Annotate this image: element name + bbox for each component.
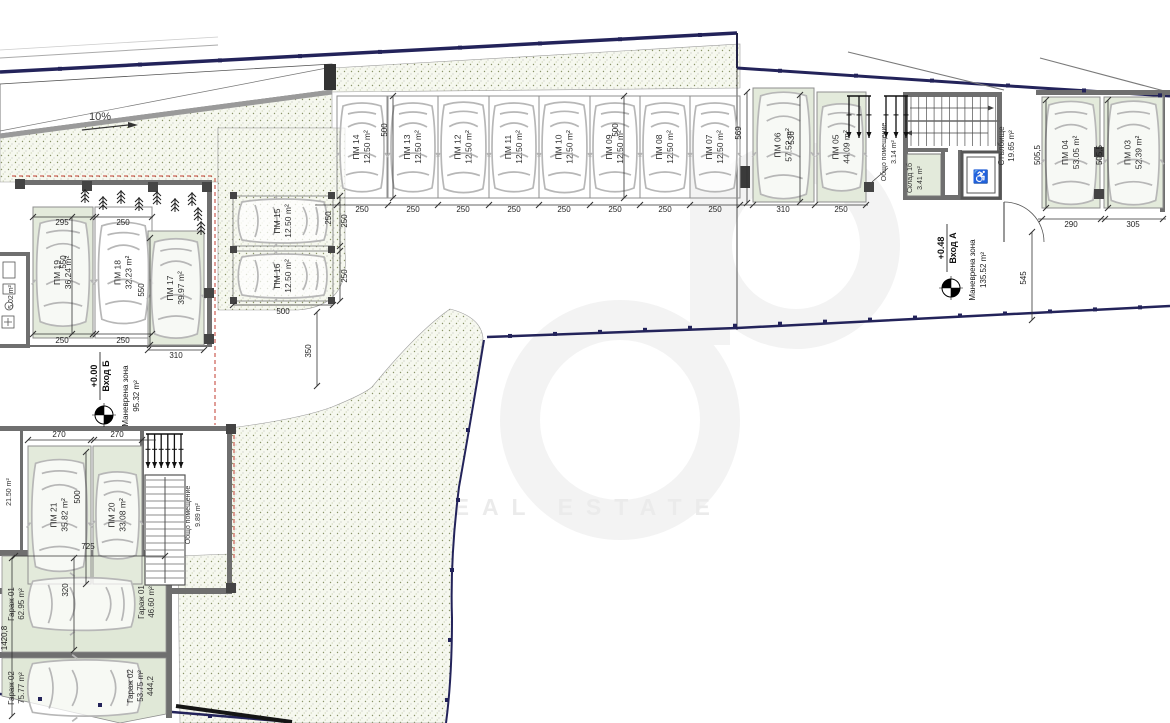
stall-label: ПМ 1739.97 m²: [165, 271, 186, 305]
fence-post: [913, 316, 917, 320]
room-label-line: 9.89 m²: [195, 502, 202, 526]
wall: [207, 180, 212, 346]
stall-label: ПМ 2135.82 m²: [49, 498, 70, 532]
fence-post: [298, 54, 302, 58]
dimension-label: 500: [276, 307, 290, 316]
room-label-line: 46.60 m²: [147, 586, 156, 618]
pillar: [328, 297, 335, 304]
dimension-label: 250: [658, 205, 672, 214]
dimension-label: 250: [340, 214, 349, 228]
stall-label: ПМ 1012.50 m²: [554, 130, 575, 164]
stall-area-value: 57.52 m²: [784, 128, 794, 162]
wall: [941, 150, 945, 200]
stall-area-value: 12.50 m²: [464, 130, 474, 164]
stall-area-value: 12.50 m²: [565, 130, 575, 164]
car-outline: [28, 578, 135, 631]
room-label-line: 53.75 m²: [136, 670, 145, 702]
room-label-line: Общо помещение: [880, 123, 888, 182]
stall-id: ПМ 08: [654, 134, 664, 159]
dimension-label: 310: [169, 351, 183, 360]
room-label-line: 3.14 m²: [891, 139, 898, 163]
wall: [0, 344, 30, 348]
fence-post: [778, 69, 782, 73]
stall-area-value: 12.50 m²: [615, 130, 625, 164]
fence-post: [688, 326, 692, 330]
dimension-label: 310: [776, 205, 790, 214]
dimension-label: 270: [110, 430, 124, 439]
entrance-b-level: +0.00: [89, 365, 99, 388]
fence-post: [643, 328, 647, 332]
dimension-label: 500: [73, 490, 82, 504]
stall-label: ПМ 1936.24 m²: [52, 256, 73, 290]
entrance-a-name: Вход А: [948, 232, 958, 264]
fence-post: [733, 324, 737, 328]
stall-label: ПМ 0544.09 m²: [831, 130, 852, 164]
fence-post: [958, 314, 962, 318]
dimension-label: 250: [834, 205, 848, 214]
stall-area-value: 12.50 m²: [715, 130, 725, 164]
room-label-line: 444,2: [146, 675, 155, 696]
dimension-label: 250: [557, 205, 571, 214]
fence-post: [466, 428, 470, 432]
room-label-line: 3.41 m²: [917, 165, 924, 189]
dimension-label: 250: [608, 205, 622, 214]
fixture: [3, 262, 15, 278]
wall: [227, 426, 232, 593]
pillar: [226, 583, 236, 593]
stall-label: ПМ 1112.50 m²: [503, 130, 524, 164]
stall-id: ПМ 15: [272, 208, 282, 233]
fence-post: [1006, 84, 1010, 88]
wall: [0, 252, 30, 256]
stall-id: ПМ 06: [773, 132, 783, 157]
fence-post: [508, 334, 512, 338]
stall-label: ПМ 0352.39 m²: [1123, 136, 1144, 170]
stall-area-value: 35.82 m²: [60, 498, 70, 532]
fence-post: [1093, 307, 1097, 311]
fence-post: [1003, 311, 1007, 315]
fence-post: [538, 41, 542, 45]
stall-area-value: 12.50 m²: [362, 130, 372, 164]
stall-id: ПМ 19: [52, 260, 62, 285]
room-label: Гараж 0275.77 m²: [7, 671, 26, 705]
stall-label: ПМ 0657.52 m²: [773, 128, 794, 162]
dimension-label: 250: [116, 218, 130, 227]
room-label: Гараж 0146.60 m²: [137, 585, 156, 619]
pillar: [148, 182, 158, 192]
stall-id: ПМ 13: [402, 134, 412, 159]
dimension-label: 250: [708, 205, 722, 214]
dimension-label: 250: [406, 205, 420, 214]
stall-area-value: 32.23 m²: [124, 256, 134, 290]
floor-plan: REAL ESTATE 10%: [0, 0, 1170, 723]
stall-id: ПМ 17: [165, 275, 175, 300]
wall: [1036, 90, 1170, 95]
dimension-label: 250: [116, 336, 130, 345]
fence-post: [378, 50, 382, 54]
fence-post: [138, 63, 142, 67]
room-label-line: 75.77 m²: [17, 672, 26, 704]
pillar: [204, 288, 214, 298]
dimension-label: 305: [1126, 220, 1140, 229]
fence-post: [778, 322, 782, 326]
room-label-line: Общо помещение: [184, 486, 192, 545]
fence-post: [1082, 88, 1086, 92]
fence-post: [1158, 93, 1162, 97]
room-label-line: 19.65 m²: [1007, 130, 1016, 162]
room-label-line: Гараж 02: [7, 671, 16, 705]
stall-label: ПМ 1512.50 m²: [272, 204, 293, 238]
pillar: [202, 182, 212, 192]
stall-area-value: 12.50 m²: [665, 130, 675, 164]
room-label-line: Гараж 01: [137, 585, 146, 619]
dimension-label: 350: [304, 344, 313, 358]
pillar: [230, 192, 237, 199]
watermark-text: REAL ESTATE: [424, 494, 723, 520]
room-label-line: Склад 1б: [906, 163, 914, 193]
fence-post: [553, 332, 557, 336]
dimension-label: 569: [734, 126, 743, 140]
pillar: [204, 334, 214, 344]
stall-id: ПМ 16: [272, 263, 282, 288]
entrance-b-name: Вход Б: [101, 360, 111, 392]
fence-post: [218, 58, 222, 62]
stall-id: ПМ 18: [113, 260, 123, 285]
fence-post: [208, 714, 212, 718]
stall-area-value: 44.09 m²: [842, 130, 852, 164]
dimension-label: 250: [324, 211, 333, 225]
fence-post: [618, 37, 622, 41]
room-label: Гараж 0162.95 m²: [7, 587, 26, 621]
dimension-label: 725: [81, 542, 95, 551]
fence-post: [1138, 305, 1142, 309]
stall-area-value: 36.24 m²: [63, 256, 73, 290]
dimension-label: 505,5: [1033, 144, 1042, 165]
stall-label: ПМ 1212.50 m²: [453, 130, 474, 164]
pillar: [15, 179, 25, 189]
pillar: [740, 166, 750, 188]
wall: [15, 180, 212, 185]
room-label-line: Гараж 02: [126, 669, 135, 703]
fence-post: [598, 330, 602, 334]
room-label: 5.02 m²: [8, 284, 15, 308]
room-label-line: Гараж 01: [7, 587, 16, 621]
stall-area-value: 12.50 m²: [283, 259, 293, 293]
inner-stair: [145, 475, 185, 585]
dimension-label: 250: [55, 336, 69, 345]
stall-label: ПМ 1312.50 m²: [402, 130, 423, 164]
stall-area-value: 53.05 m²: [1071, 136, 1081, 170]
stall-id: ПМ 21: [49, 502, 59, 527]
fence-post: [930, 79, 934, 83]
pillar: [864, 182, 874, 192]
fence-post: [458, 46, 462, 50]
dimension-label: 500: [380, 123, 389, 137]
stall-label: ПМ 1832.23 m²: [113, 256, 134, 290]
wall: [0, 652, 172, 658]
car-icon: [28, 655, 142, 722]
stall-id: ПМ 04: [1060, 140, 1070, 165]
stall-id: ПМ 07: [704, 134, 714, 159]
pillar: [230, 246, 237, 253]
dimension-label: 320: [61, 583, 70, 597]
dimension-label: 545: [1019, 271, 1028, 285]
fence-post: [1048, 309, 1052, 313]
pillar: [328, 246, 335, 253]
fence-post: [456, 498, 460, 502]
stall-area-value: 12.50 m²: [283, 204, 293, 238]
stall-label: ПМ 2033.08 m²: [107, 498, 128, 532]
zone-area: 135.52 m²: [979, 252, 988, 288]
dimension-label: 270: [52, 430, 66, 439]
stall-id: ПМ 03: [1123, 140, 1133, 165]
stall-id: ПМ 10: [554, 134, 564, 159]
dimension-label: 250: [456, 205, 470, 214]
zone-area: 95.32 m²: [132, 380, 141, 412]
stall-id: ПМ 09: [604, 134, 614, 159]
stall-label: ПМ 0912.50 m²: [604, 130, 625, 164]
stall-id: ПМ 12: [453, 134, 463, 159]
ramp-end-pillar: [324, 64, 336, 90]
dimension-label: 250: [355, 205, 369, 214]
room-label-line: 5.02 m²: [8, 284, 15, 308]
pillar: [226, 424, 236, 434]
dimension-label: 295: [55, 218, 69, 227]
room-label: 21.50 m²: [6, 478, 13, 506]
pillar: [230, 297, 237, 304]
room-label-line: Стълбище: [997, 126, 1006, 166]
stall-id: ПМ 14: [351, 134, 361, 159]
ramp-slope-label: 10%: [89, 111, 111, 123]
stall-id: ПМ 20: [107, 502, 117, 527]
pillar: [1094, 189, 1104, 199]
stall-area-value: 39.97 m²: [176, 271, 186, 305]
fence-post: [450, 568, 454, 572]
stall-label: ПМ 1412.50 m²: [351, 130, 372, 164]
room-label-line: 62.95 m²: [17, 588, 26, 620]
car-outline: [28, 660, 142, 716]
stall-area-value: 12.50 m²: [413, 130, 423, 164]
stall-label: ПМ 1612.50 m²: [272, 259, 293, 293]
wheelchair-icon: ♿: [973, 169, 989, 184]
wall: [26, 252, 30, 348]
stall-area-value: 33.08 m²: [118, 498, 128, 532]
stall-area-value: 52.39 m²: [1134, 136, 1144, 170]
fence-post: [448, 638, 452, 642]
dimension-label: 1420,8: [0, 625, 9, 650]
dimension-label: 290: [1064, 220, 1078, 229]
fence-post: [854, 74, 858, 78]
zone-name: Маневрена зона: [121, 365, 130, 427]
pillar: [328, 192, 335, 199]
stall-id: ПМ 11: [503, 135, 513, 160]
fence-post: [823, 320, 827, 324]
dimension-label: 250: [340, 269, 349, 283]
car-icon: [28, 573, 135, 635]
fence-post: [868, 318, 872, 322]
fence-post: [58, 67, 62, 71]
room-label-line: 21.50 m²: [6, 478, 13, 506]
stall-id: ПМ 05: [831, 134, 841, 159]
stall-label: ПМ 0453.05 m²: [1060, 136, 1081, 170]
fence-post: [38, 697, 42, 701]
dimension-label: 550: [137, 283, 146, 297]
entrance-a-level: +0.48: [936, 237, 946, 260]
dimension-label: 505,5: [1095, 144, 1104, 165]
room-label: Стълбище19.65 m²: [997, 126, 1016, 166]
stall-label: ПМ 0812.50 m²: [654, 130, 675, 164]
dimension-label: 250: [507, 205, 521, 214]
zone-name: Маневрена зона: [968, 239, 977, 301]
pillar: [82, 181, 92, 191]
stall-area-value: 12.50 m²: [514, 130, 524, 164]
fence-post: [98, 703, 102, 707]
fence-post: [445, 698, 449, 702]
fence-post: [698, 33, 702, 37]
stall-label: ПМ 0712.50 m²: [704, 130, 725, 164]
wall: [903, 92, 1002, 97]
